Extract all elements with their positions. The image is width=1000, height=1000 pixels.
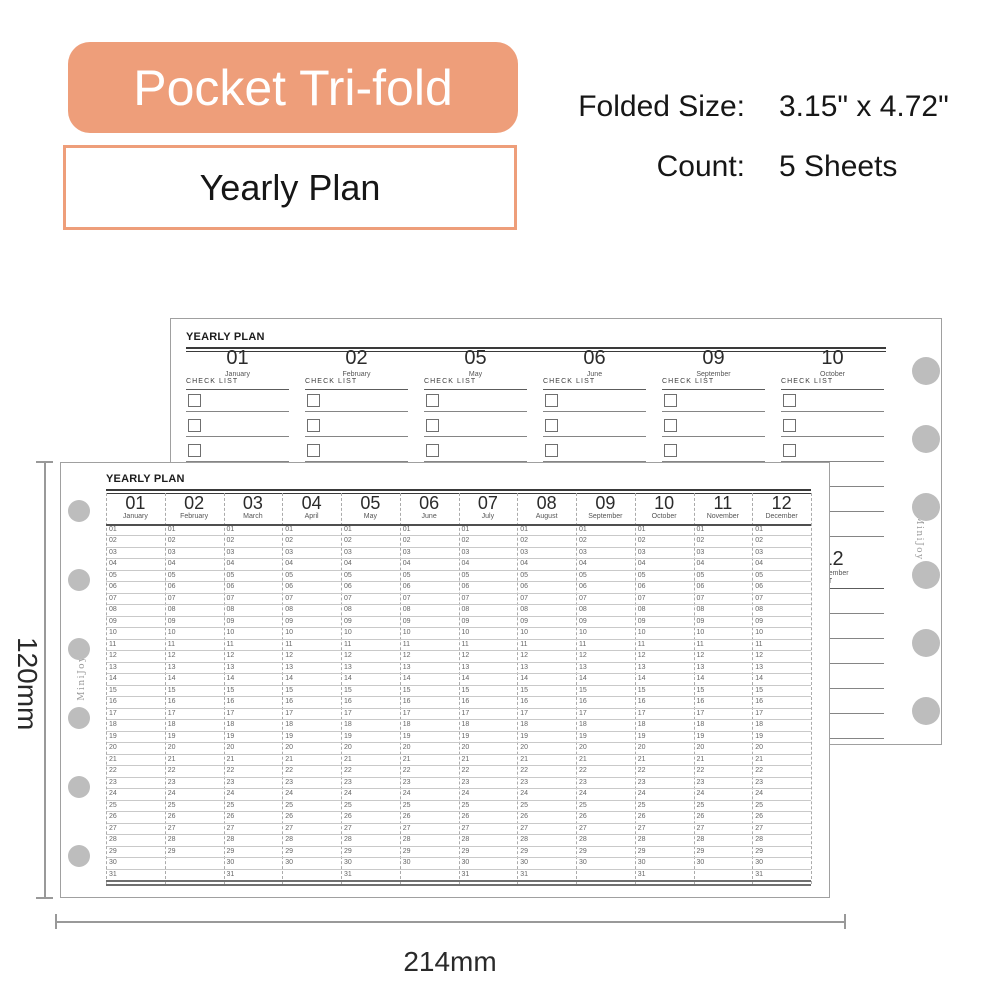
day-cell: 14 <box>165 674 224 685</box>
day-cell: 08 <box>282 605 341 616</box>
day-cell: 18 <box>282 720 341 731</box>
day-cell: 20 <box>635 743 694 754</box>
day-cell: 30 <box>694 858 753 869</box>
day-cell: 08 <box>341 605 400 616</box>
day-cell: 30 <box>517 858 576 869</box>
day-cell: 14 <box>752 674 811 685</box>
day-cell: 02 <box>165 536 224 547</box>
day-cell: 07 <box>282 594 341 605</box>
day-cell: 23 <box>459 778 518 789</box>
day-cell: 16 <box>106 697 165 708</box>
month-name: June <box>400 513 459 520</box>
day-cell: 05 <box>282 571 341 582</box>
month-number: 06 <box>543 347 646 369</box>
day-cell: 06 <box>517 582 576 593</box>
day-cell: 07 <box>635 594 694 605</box>
month-column: 0102030405060708091011121314151617181920… <box>400 525 459 881</box>
front-sheet-title: YEARLY PLAN <box>106 473 185 485</box>
day-cell: 16 <box>165 697 224 708</box>
day-cell: 06 <box>459 582 518 593</box>
day-cell: 23 <box>224 778 283 789</box>
month-name: September <box>662 371 765 378</box>
day-cell: 21 <box>165 755 224 766</box>
day-cell: 09 <box>400 617 459 628</box>
day-cell: 17 <box>752 709 811 720</box>
checklist-label-rule <box>186 389 289 390</box>
checklist-label-rule <box>662 389 765 390</box>
day-cell: 16 <box>341 697 400 708</box>
day-cell: 22 <box>224 766 283 777</box>
checklist-label-rule <box>305 389 408 390</box>
checklist-line <box>781 411 884 412</box>
column-separator <box>811 493 812 884</box>
day-cell: 29 <box>694 847 753 858</box>
day-cell: 08 <box>517 605 576 616</box>
day-cell: 10 <box>635 628 694 639</box>
day-cell: 12 <box>752 651 811 662</box>
day-cell: 16 <box>224 697 283 708</box>
day-cell: 26 <box>400 812 459 823</box>
day-cell: 25 <box>224 801 283 812</box>
day-cell: 15 <box>576 686 635 697</box>
day-cell: 07 <box>106 594 165 605</box>
day-cell: 16 <box>635 697 694 708</box>
day-cell: 17 <box>106 709 165 720</box>
day-cell: 02 <box>224 536 283 547</box>
day-cell: 15 <box>400 686 459 697</box>
day-cell: 10 <box>576 628 635 639</box>
day-cell: 29 <box>635 847 694 858</box>
day-cell: 09 <box>752 617 811 628</box>
day-cell: 28 <box>282 835 341 846</box>
day-cell: 29 <box>576 847 635 858</box>
day-cell: 30 <box>459 858 518 869</box>
height-dim-cap-bottom <box>36 897 53 899</box>
day-cell: 07 <box>459 594 518 605</box>
day-cell: 11 <box>341 640 400 651</box>
day-cell: 11 <box>635 640 694 651</box>
day-cell: 13 <box>165 663 224 674</box>
month-number: 12 <box>752 494 811 513</box>
day-cell: 26 <box>517 812 576 823</box>
day-cell: 26 <box>282 812 341 823</box>
day-cell: 29 <box>459 847 518 858</box>
day-cell: 13 <box>517 663 576 674</box>
month-number: 05 <box>341 494 400 513</box>
day-cell: 13 <box>106 663 165 674</box>
day-cell: 29 <box>165 847 224 858</box>
day-cell: 05 <box>165 571 224 582</box>
day-cell: 20 <box>752 743 811 754</box>
day-cell: 11 <box>576 640 635 651</box>
month-column: 0102030405060708091011121314151617181920… <box>576 525 635 881</box>
specs: Folded Size: 3.15" x 4.72" Count: 5 Shee… <box>555 90 949 184</box>
day-cell: 24 <box>165 789 224 800</box>
day-cell: 12 <box>694 651 753 662</box>
day-cell: 25 <box>752 801 811 812</box>
checkbox <box>307 444 320 457</box>
day-cell: 07 <box>752 594 811 605</box>
checklist-label: CHECK LIST <box>781 378 833 385</box>
day-cell: 07 <box>517 594 576 605</box>
day-cell: 25 <box>341 801 400 812</box>
day-cell: 06 <box>576 582 635 593</box>
day-cell: 24 <box>341 789 400 800</box>
day-cell: 06 <box>635 582 694 593</box>
day-cell: 15 <box>752 686 811 697</box>
checkbox <box>783 444 796 457</box>
day-cell: 14 <box>576 674 635 685</box>
day-cell: 03 <box>106 548 165 559</box>
binder-hole <box>912 697 940 725</box>
checklist-line <box>662 411 765 412</box>
day-cell: 22 <box>752 766 811 777</box>
day-cell: 18 <box>459 720 518 731</box>
day-cell: 18 <box>165 720 224 731</box>
month-name: November <box>694 513 753 520</box>
day-cell: 02 <box>106 536 165 547</box>
day-cell: 21 <box>224 755 283 766</box>
day-cell: 15 <box>517 686 576 697</box>
day-cell: 13 <box>459 663 518 674</box>
day-cell: 30 <box>400 858 459 869</box>
day-cell: 29 <box>341 847 400 858</box>
day-cell: 02 <box>459 536 518 547</box>
day-cell: 10 <box>517 628 576 639</box>
month-number: 01 <box>186 347 289 369</box>
day-cell: 01 <box>224 525 283 536</box>
checkbox <box>188 394 201 407</box>
day-cell: 22 <box>635 766 694 777</box>
day-cell: 06 <box>106 582 165 593</box>
day-cell: 09 <box>165 617 224 628</box>
day-cell: 08 <box>635 605 694 616</box>
day-cell: 17 <box>517 709 576 720</box>
day-cell: 25 <box>282 801 341 812</box>
checkbox <box>783 394 796 407</box>
day-cell: 09 <box>106 617 165 628</box>
day-cell: 28 <box>165 835 224 846</box>
checklist-line <box>305 436 408 437</box>
day-cell: 25 <box>400 801 459 812</box>
month-name: October <box>635 513 694 520</box>
day-cell: 10 <box>341 628 400 639</box>
day-cell: 26 <box>459 812 518 823</box>
day-cell: 22 <box>459 766 518 777</box>
day-cell: 22 <box>341 766 400 777</box>
binder-hole <box>68 845 90 867</box>
day-cell: 24 <box>635 789 694 800</box>
day-cell: 23 <box>694 778 753 789</box>
month-column: 0102030405060708091011121314151617181920… <box>752 525 811 881</box>
day-cell: 02 <box>635 536 694 547</box>
day-cell: 08 <box>224 605 283 616</box>
day-cell: 07 <box>165 594 224 605</box>
day-cell: 02 <box>694 536 753 547</box>
day-cell: 03 <box>341 548 400 559</box>
checklist-label-rule <box>424 389 527 390</box>
day-cell: 26 <box>635 812 694 823</box>
day-cell: 02 <box>576 536 635 547</box>
day-cell: 27 <box>106 824 165 835</box>
day-cell: 28 <box>694 835 753 846</box>
day-cell: 19 <box>752 732 811 743</box>
product-image: Pocket Tri-fold Yearly Plan Folded Size:… <box>0 0 1000 1000</box>
checkbox <box>188 444 201 457</box>
day-cell: 24 <box>224 789 283 800</box>
day-cell: 03 <box>400 548 459 559</box>
day-cell: 01 <box>400 525 459 536</box>
folded-size-value: 3.15" x 4.72" <box>779 90 949 124</box>
binder-hole <box>68 569 90 591</box>
day-cell: 24 <box>517 789 576 800</box>
day-cell: 05 <box>341 571 400 582</box>
day-cell: 15 <box>282 686 341 697</box>
day-cell: 27 <box>694 824 753 835</box>
day-cell: 12 <box>341 651 400 662</box>
width-dim-line <box>55 921 845 923</box>
checkbox <box>188 419 201 432</box>
day-cell: 21 <box>517 755 576 766</box>
day-cell: 13 <box>224 663 283 674</box>
day-cell: 09 <box>459 617 518 628</box>
day-cell: 27 <box>341 824 400 835</box>
day-cell: 16 <box>400 697 459 708</box>
day-cell: 12 <box>224 651 283 662</box>
day-cell: 05 <box>459 571 518 582</box>
day-cell: 20 <box>694 743 753 754</box>
day-cell: 20 <box>224 743 283 754</box>
day-cell: 11 <box>282 640 341 651</box>
day-cell: 17 <box>282 709 341 720</box>
day-cell: 04 <box>635 559 694 570</box>
month-number: 04 <box>282 494 341 513</box>
checklist-line <box>305 411 408 412</box>
day-cell: 09 <box>341 617 400 628</box>
day-cell: 27 <box>752 824 811 835</box>
day-cell: 30 <box>282 858 341 869</box>
day-cell: 17 <box>341 709 400 720</box>
day-cell: 01 <box>694 525 753 536</box>
day-cell: 23 <box>282 778 341 789</box>
day-cell: 10 <box>224 628 283 639</box>
day-cell: 18 <box>635 720 694 731</box>
month-number: 11 <box>694 494 753 513</box>
month-name: August <box>517 513 576 520</box>
day-cell: 27 <box>224 824 283 835</box>
day-cell: 07 <box>400 594 459 605</box>
month-number: 05 <box>424 347 527 369</box>
day-cell: 28 <box>224 835 283 846</box>
day-cell: 04 <box>459 559 518 570</box>
day-cell: 28 <box>517 835 576 846</box>
day-cell: 01 <box>635 525 694 536</box>
day-cell: 25 <box>106 801 165 812</box>
month-column: 0102030405060708091011121314151617181920… <box>694 525 753 881</box>
day-cell: 14 <box>400 674 459 685</box>
month-name: October <box>781 371 884 378</box>
checklist-label-rule <box>543 389 646 390</box>
day-cell: 04 <box>224 559 283 570</box>
day-cell: 22 <box>282 766 341 777</box>
checklist-line <box>662 436 765 437</box>
day-cell: 07 <box>224 594 283 605</box>
day-cell: 11 <box>459 640 518 651</box>
day-cell: 10 <box>400 628 459 639</box>
day-cell: 21 <box>400 755 459 766</box>
month-number: 02 <box>165 494 224 513</box>
day-cell: 11 <box>752 640 811 651</box>
day-cell: 20 <box>517 743 576 754</box>
day-cell: 29 <box>282 847 341 858</box>
checklist-label: CHECK LIST <box>305 378 357 385</box>
binder-hole <box>68 776 90 798</box>
day-cell: 23 <box>752 778 811 789</box>
day-cell: 14 <box>282 674 341 685</box>
month-number: 08 <box>517 494 576 513</box>
day-cell: 12 <box>282 651 341 662</box>
day-cell: 23 <box>635 778 694 789</box>
day-cell: 15 <box>341 686 400 697</box>
checklist-line <box>186 436 289 437</box>
checklist-line <box>781 436 884 437</box>
day-cell: 09 <box>576 617 635 628</box>
day-cell: 05 <box>694 571 753 582</box>
month-name: February <box>165 513 224 520</box>
day-cell: 02 <box>517 536 576 547</box>
day-cell: 10 <box>165 628 224 639</box>
month-number: 06 <box>400 494 459 513</box>
subtitle-box: Yearly Plan <box>63 145 517 230</box>
day-cell: 17 <box>576 709 635 720</box>
checklist-label-rule <box>781 389 884 390</box>
day-cell: 29 <box>106 847 165 858</box>
subtitle-label: Yearly Plan <box>200 167 381 209</box>
day-cell: 16 <box>517 697 576 708</box>
day-cell: 17 <box>694 709 753 720</box>
day-cell: 04 <box>165 559 224 570</box>
day-cell: 22 <box>165 766 224 777</box>
checkbox <box>545 394 558 407</box>
day-cell: 20 <box>576 743 635 754</box>
day-cell: 15 <box>165 686 224 697</box>
count-label: Count: <box>555 150 745 184</box>
height-dim-cap-top <box>36 461 53 463</box>
bottom-rule <box>106 880 811 886</box>
height-dim-label: 120mm <box>11 637 43 727</box>
day-cell: 20 <box>106 743 165 754</box>
day-cell: 11 <box>694 640 753 651</box>
day-cell: 21 <box>752 755 811 766</box>
day-cell: 21 <box>282 755 341 766</box>
day-cell: 02 <box>282 536 341 547</box>
month-name: March <box>224 513 283 520</box>
day-cell: 28 <box>106 835 165 846</box>
day-cell: 19 <box>165 732 224 743</box>
day-cell: 26 <box>694 812 753 823</box>
day-cell: 18 <box>400 720 459 731</box>
binder-hole <box>68 707 90 729</box>
checklist-label: CHECK LIST <box>543 378 595 385</box>
checklist-line <box>543 436 646 437</box>
width-dim-cap-right <box>844 914 846 929</box>
day-cell: 24 <box>400 789 459 800</box>
day-cell: 13 <box>341 663 400 674</box>
month-column: 0102030405060708091011121314151617181920… <box>635 525 694 881</box>
day-cell: 19 <box>459 732 518 743</box>
month-column: 0102030405060708091011121314151617181920… <box>282 525 341 881</box>
checklist-line <box>543 411 646 412</box>
day-cell: 01 <box>517 525 576 536</box>
width-dim-cap-left <box>55 914 57 929</box>
binder-hole <box>912 561 940 589</box>
day-cell: 01 <box>282 525 341 536</box>
column-separator <box>106 493 107 884</box>
day-cell: 23 <box>341 778 400 789</box>
day-cell: 24 <box>106 789 165 800</box>
day-cell: 25 <box>517 801 576 812</box>
day-cell: 11 <box>224 640 283 651</box>
day-cell: 07 <box>576 594 635 605</box>
checkbox <box>307 419 320 432</box>
month-column: 0102030405060708091011121314151617181920… <box>341 525 400 881</box>
binder-hole <box>68 638 90 660</box>
day-cell: 06 <box>165 582 224 593</box>
day-cell: 24 <box>576 789 635 800</box>
day-cell: 12 <box>400 651 459 662</box>
day-cell: 02 <box>752 536 811 547</box>
day-cell: 13 <box>576 663 635 674</box>
day-cell: 12 <box>517 651 576 662</box>
checkbox <box>545 444 558 457</box>
checklist-line <box>424 411 527 412</box>
day-cell: 02 <box>341 536 400 547</box>
day-cell: 30 <box>106 858 165 869</box>
day-cell: 27 <box>282 824 341 835</box>
day-cell: 05 <box>106 571 165 582</box>
checkbox <box>545 419 558 432</box>
title-badge: Pocket Tri-fold <box>68 42 518 133</box>
day-cell: 03 <box>224 548 283 559</box>
month-name: April <box>282 513 341 520</box>
day-cell: 06 <box>752 582 811 593</box>
day-cell: 04 <box>341 559 400 570</box>
month-column: 0102030405060708091011121314151617181920… <box>165 525 224 881</box>
month-number: 09 <box>576 494 635 513</box>
height-dim-line <box>44 462 46 898</box>
day-cell: 29 <box>517 847 576 858</box>
month-column: 0102030405060708091011121314151617181920… <box>224 525 283 881</box>
month-name: June <box>543 371 646 378</box>
binder-hole <box>68 500 90 522</box>
checkbox <box>783 419 796 432</box>
day-cell: 19 <box>282 732 341 743</box>
day-cell: 08 <box>106 605 165 616</box>
day-cell: 18 <box>694 720 753 731</box>
month-number: 09 <box>662 347 765 369</box>
month-name: May <box>424 371 527 378</box>
day-cell: 26 <box>106 812 165 823</box>
day-cell: 18 <box>517 720 576 731</box>
day-cell: 14 <box>106 674 165 685</box>
day-cell: 30 <box>635 858 694 869</box>
day-cell: 12 <box>576 651 635 662</box>
day-cell: 15 <box>459 686 518 697</box>
checklist-line <box>186 411 289 412</box>
binder-hole <box>912 357 940 385</box>
day-cell: 10 <box>752 628 811 639</box>
day-cell: 04 <box>282 559 341 570</box>
